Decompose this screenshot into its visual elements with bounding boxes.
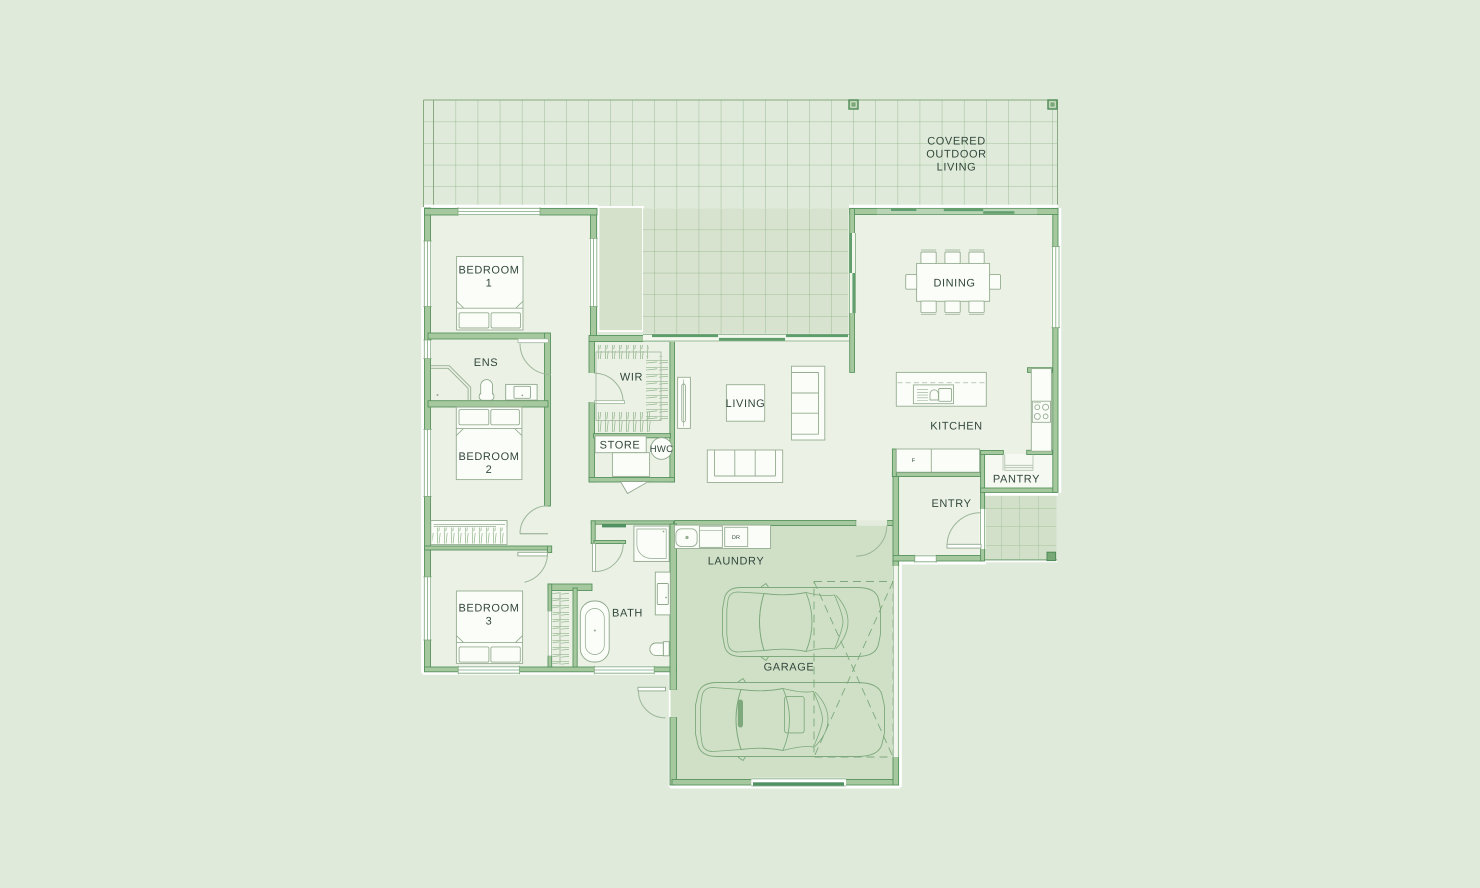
svg-text:BEDROOM: BEDROOM — [458, 265, 519, 277]
svg-text:ENS: ENS — [474, 357, 498, 369]
svg-text:LIVING: LIVING — [937, 162, 977, 174]
svg-text:LAUNDRY: LAUNDRY — [708, 556, 765, 568]
svg-text:WIR: WIR — [620, 372, 643, 384]
svg-text:BEDROOM: BEDROOM — [458, 451, 519, 463]
svg-text:GARAGE: GARAGE — [764, 662, 815, 674]
svg-text:COVERED: COVERED — [927, 136, 986, 148]
svg-text:DINING: DINING — [933, 278, 975, 290]
svg-text:ENTRY: ENTRY — [931, 498, 971, 510]
svg-text:OUTDOOR: OUTDOOR — [926, 149, 986, 161]
svg-text:2: 2 — [486, 464, 493, 476]
svg-text:KITCHEN: KITCHEN — [930, 421, 982, 433]
svg-text:BEDROOM: BEDROOM — [458, 603, 519, 615]
svg-text:BATH: BATH — [612, 608, 643, 620]
svg-text:PANTRY: PANTRY — [993, 474, 1040, 486]
svg-text:F: F — [912, 458, 916, 464]
svg-text:HWC: HWC — [650, 444, 674, 455]
svg-text:3: 3 — [486, 616, 493, 628]
svg-text:STORE: STORE — [600, 440, 641, 452]
svg-text:LIVING: LIVING — [726, 398, 766, 410]
svg-text:DR: DR — [732, 535, 740, 541]
svg-text:1: 1 — [486, 278, 493, 290]
